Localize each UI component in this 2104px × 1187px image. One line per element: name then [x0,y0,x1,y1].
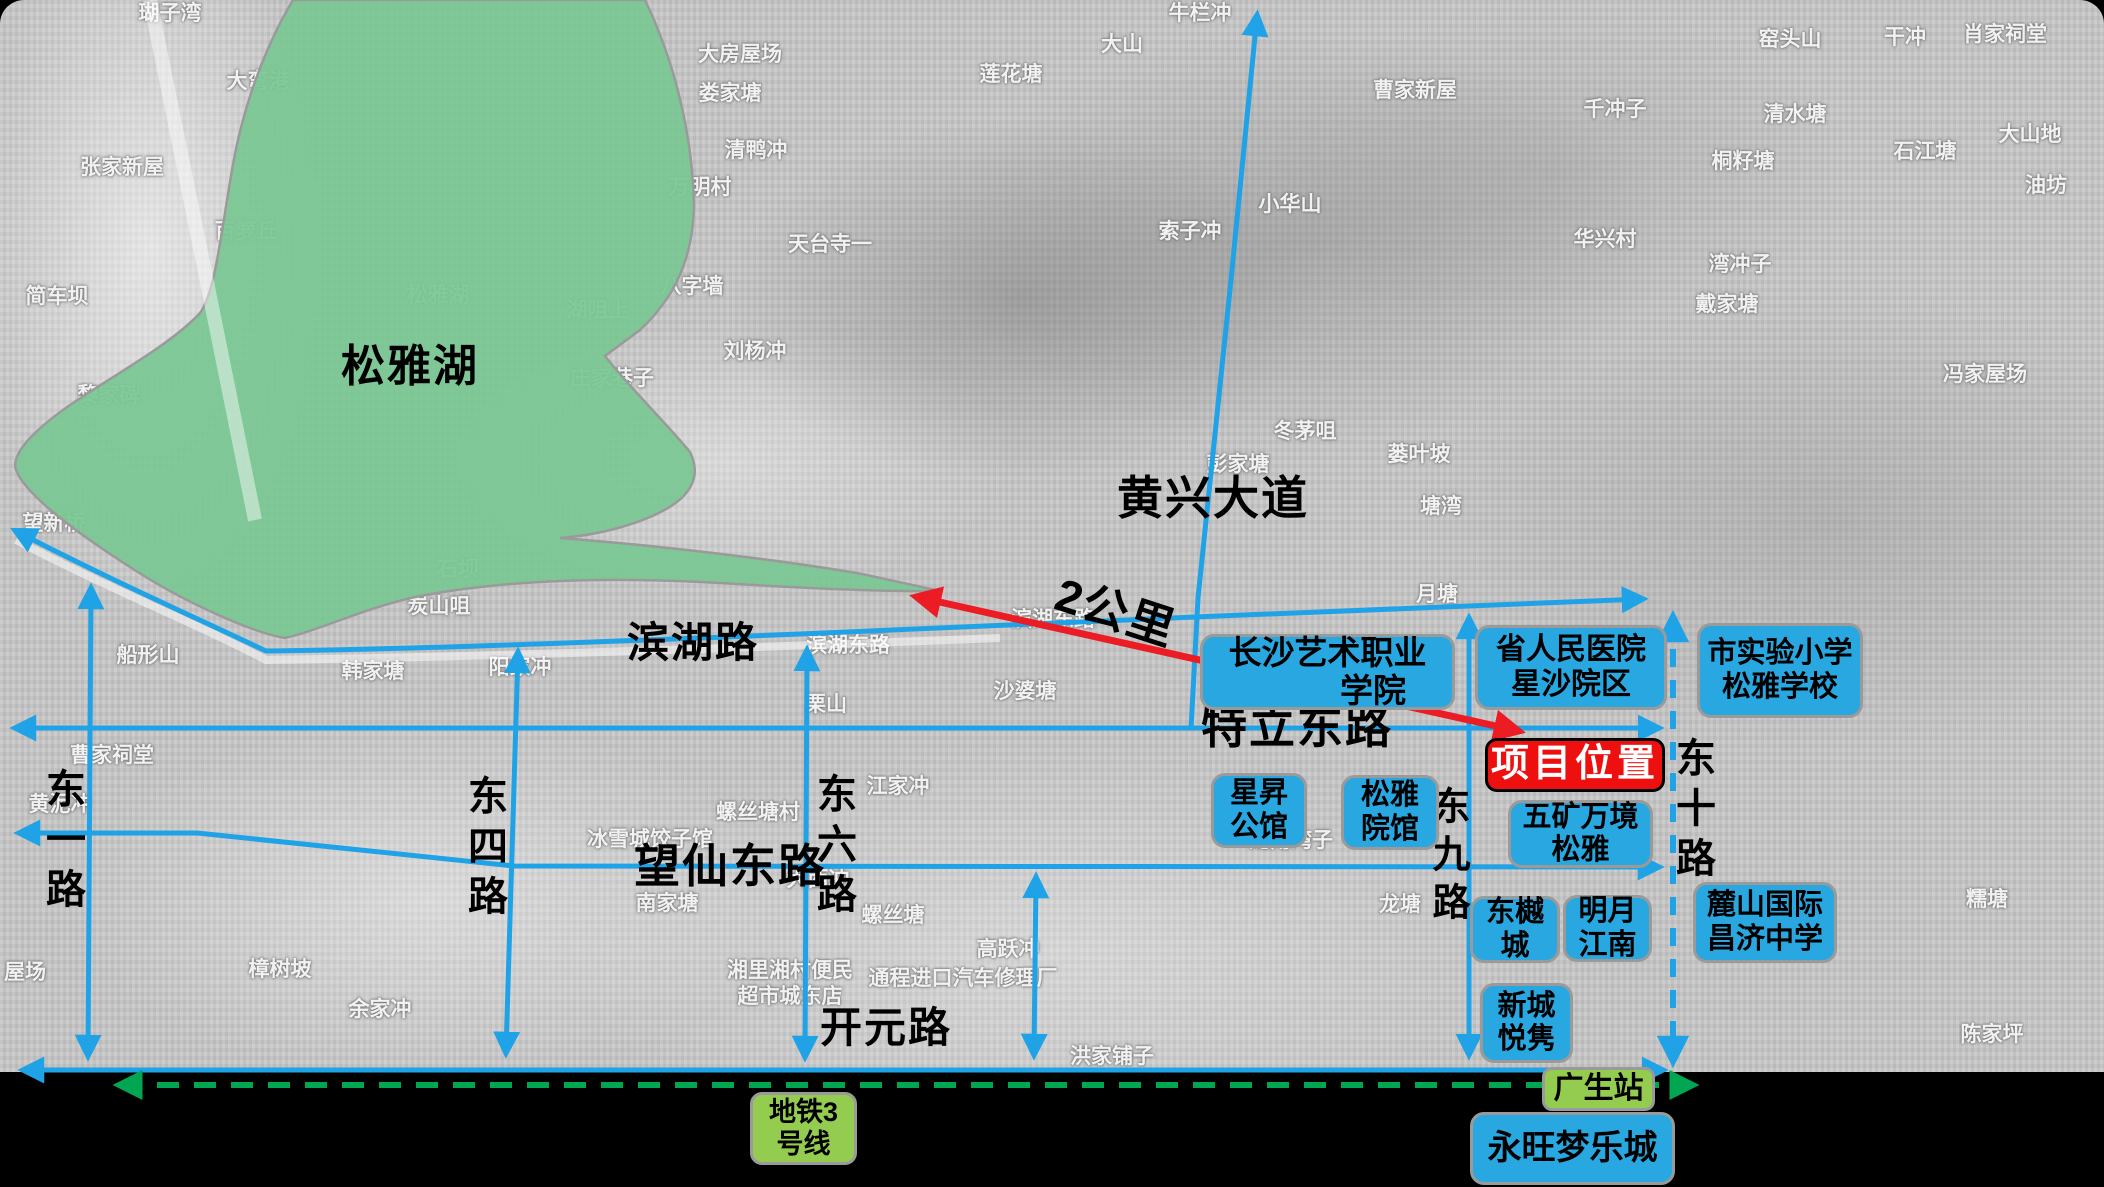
city-experimental-primary-school-label: 市实验小学 [1707,637,1852,670]
dongqi-road-line [1034,878,1036,1054]
dongyue-city-label: 东樾 [1486,896,1544,929]
road-label: 东十路 [1672,737,1712,887]
wukuang-wanjing-songya-label: 五矿万境 [1522,801,1638,834]
dongyue-city: 东樾城 [1470,896,1560,963]
road-label: 东六路 [813,773,853,923]
xingsheng-mansion-label: 星昇 [1230,777,1288,810]
wukuang-wanjing-songya-label: 松雅 [1551,834,1609,867]
changsha-art-college-label: 长沙艺术职业 [1229,634,1427,672]
road-label: 黄兴大道 [1117,475,1309,521]
songya-lake-area [15,0,940,638]
metro-line-3: 地铁3号线 [750,1092,857,1165]
city-experimental-primary-school: 市实验小学松雅学校 [1697,623,1863,718]
wukuang-wanjing-songya: 五矿万境松雅 [1508,800,1653,868]
project-location: 项目位置 [1485,738,1665,792]
dongyue-city-label: 城 [1500,930,1529,963]
xingsheng-mansion-label: 公馆 [1230,811,1288,844]
xincheng-yuejun-label: 悦隽 [1497,1023,1555,1056]
road-label: 滨湖路 [627,622,759,664]
road-label: 东一路 [42,768,82,918]
guangsheng-station-label: 广生站 [1554,1072,1644,1107]
dongsi-road-line [506,653,518,1052]
changsha-art-college: 长沙艺术职业学院 [1200,634,1455,710]
aeon-mall: 永旺梦乐城 [1470,1112,1675,1185]
provincial-peoples-hospital-label: 星沙院区 [1511,668,1631,703]
annotation-overlay [0,0,2104,1187]
project-location-label: 项目位置 [1491,743,1659,787]
xincheng-yuejun: 新城悦隽 [1480,983,1573,1063]
guangsheng-station: 广生站 [1542,1067,1655,1111]
xincheng-yuejun-label: 新城 [1497,990,1555,1023]
changsha-art-college-label: 学院 [1340,672,1452,710]
dongyi-road-line [88,589,91,1055]
mingyue-jiangnan: 明月江南 [1563,895,1652,962]
songya-yuanguan-label: 院馆 [1361,813,1419,846]
xingsheng-mansion: 星昇公馆 [1211,773,1307,848]
road-label: 开元路 [820,1007,952,1049]
lushan-international-school-label: 昌济中学 [1707,923,1823,956]
road-label: 松雅湖 [341,345,479,389]
mingyue-jiangnan-label: 明月 [1578,895,1636,928]
road-label: 特立东路 [1201,704,1393,750]
huangxing-avenue-line [1191,16,1257,729]
city-experimental-primary-school-label: 松雅学校 [1722,671,1838,704]
mingyue-jiangnan-label: 江南 [1578,929,1636,962]
metro-line-3-label: 号线 [777,1129,831,1160]
road-label: 东四路 [464,775,504,925]
aeon-mall-label: 永旺梦乐城 [1488,1129,1658,1168]
provincial-peoples-hospital: 省人民医院星沙院区 [1475,625,1667,710]
provincial-peoples-hospital-label: 省人民医院 [1496,633,1646,668]
songya-yuanguan-label: 松雅 [1361,779,1419,812]
map-figure: 瑚子湾大弯港张家新屋百箩丘简车坝黎家碑望新桥船形山曹家祠堂黄泥冲屋场樟树坡余家冲… [0,0,2104,1187]
metro-line-3-label: 地铁3 [769,1097,838,1128]
lushan-international-school-label: 麓山国际 [1707,889,1823,922]
songya-yuanguan: 松雅院馆 [1341,775,1439,850]
road-label: 望仙东路 [634,843,826,889]
lushan-international-school: 麓山国际昌济中学 [1693,882,1837,963]
